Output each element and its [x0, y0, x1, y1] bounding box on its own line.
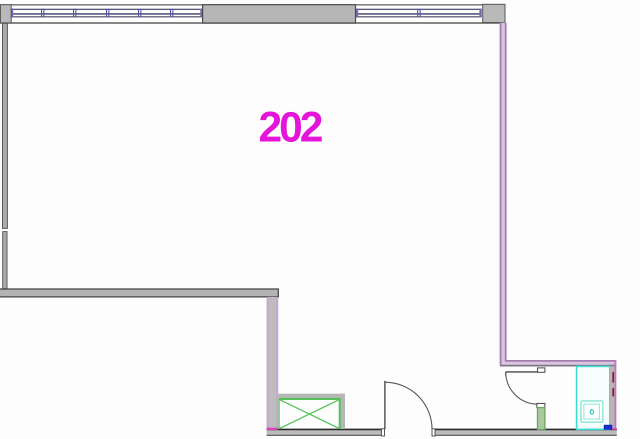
svg-text:202: 202 [259, 104, 322, 151]
